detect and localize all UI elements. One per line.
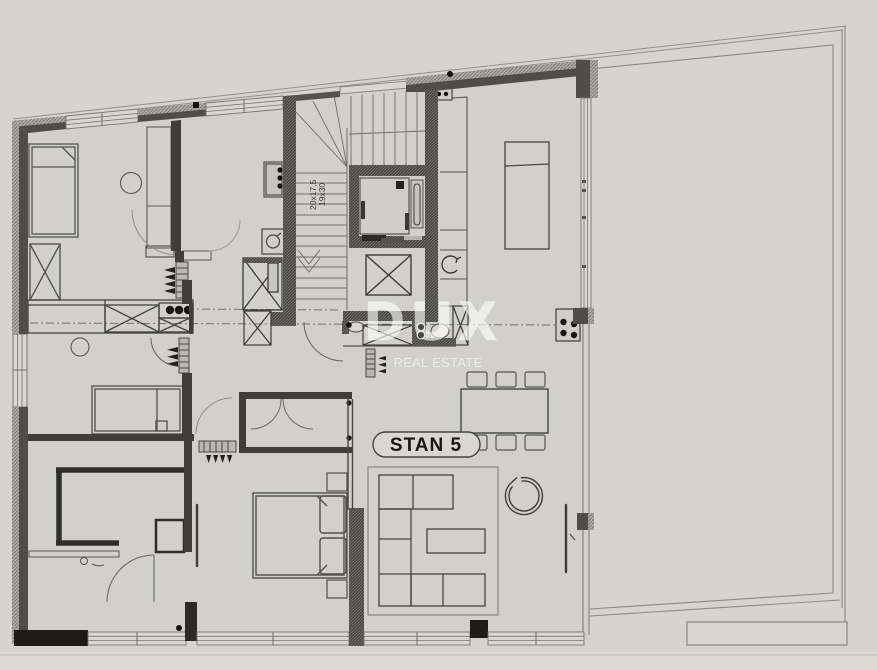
svg-text:STAN 5: STAN 5 [390,435,462,456]
svg-text:19x30: 19x30 [317,183,327,206]
svg-text:DUX: DUX [366,292,505,351]
svg-text:REAL ESTATE: REAL ESTATE [393,355,482,370]
